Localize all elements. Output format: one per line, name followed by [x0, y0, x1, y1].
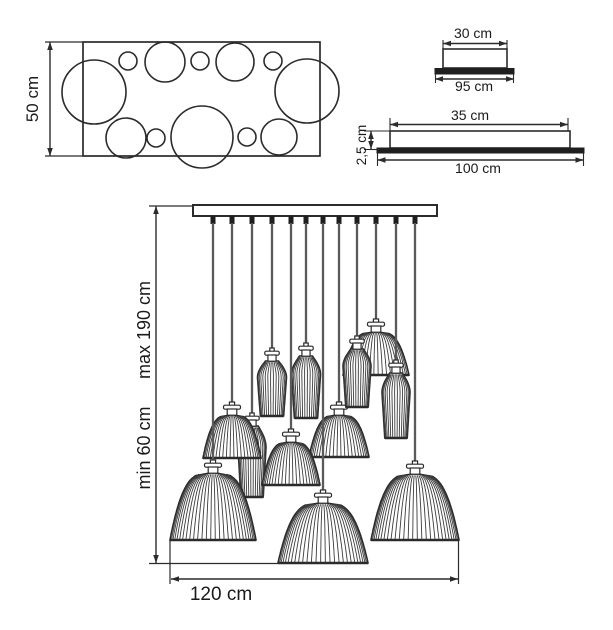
drawing-canvas: 50 cm 30 cm 95 cm 35 cm 2,5 cm 100 cm ma…: [0, 0, 613, 630]
cord-connector: [289, 216, 294, 224]
dim-arrowhead: [368, 131, 374, 139]
fitting-waist: [227, 409, 237, 415]
dim-label-canopy-side-base: 100 cm: [455, 160, 501, 176]
shade-opening-circle: [238, 128, 256, 146]
shade-opening-circle: [106, 118, 146, 158]
cord-connector: [250, 216, 255, 224]
fitting-waist: [410, 468, 420, 474]
shade-opening-circle: [264, 52, 282, 70]
shade-opening-circle: [119, 52, 137, 70]
dim-label-drop-max: max 190 cm: [134, 281, 154, 379]
ceiling-bar: [193, 205, 437, 216]
shade-outline-dome: [309, 415, 369, 457]
cord-connector: [413, 216, 418, 224]
canopy-top-view: [45, 42, 339, 168]
dim-arrowhead: [368, 141, 374, 149]
dim-arrowhead: [153, 206, 159, 214]
cord-connector: [394, 216, 399, 224]
shade-opening-circle: [147, 129, 165, 147]
canopy-front-view: [435, 40, 514, 83]
canopy-base-plate: [377, 148, 584, 153]
dim-arrowhead: [378, 157, 386, 163]
cord-connector: [374, 216, 379, 224]
dim-arrowhead: [450, 576, 458, 582]
pendant-4: [258, 223, 287, 416]
pendant-11: [382, 223, 410, 438]
dim-label-canopy-side-height: 2,5 cm: [354, 125, 369, 166]
fitting-waist: [392, 367, 400, 373]
dim-arrowhead: [390, 122, 398, 128]
dim-label-canopy-top-width: 30 cm: [454, 25, 492, 41]
fitting-waist: [208, 467, 218, 473]
canopy-body: [443, 49, 507, 68]
dim-arrowhead: [576, 157, 584, 163]
shade-outline-dome: [371, 474, 459, 540]
dim-arrowhead: [560, 122, 568, 128]
shade-opening-circle: [191, 52, 209, 70]
dim-arrowhead: [443, 41, 451, 47]
dim-label-canopy-top-base: 95 cm: [455, 78, 493, 94]
fitting-waist: [353, 343, 361, 349]
fitting-waist: [371, 326, 381, 332]
cord-connector: [337, 216, 342, 224]
dim-label-top-view-height: 50 cm: [23, 76, 42, 122]
canopy-body: [390, 131, 570, 148]
fitting-waist: [334, 409, 344, 415]
pendant-1: [170, 223, 256, 540]
dim-arrowhead: [499, 41, 507, 47]
shade-opening-circle: [261, 119, 297, 155]
cord-connector: [211, 216, 216, 224]
dim-arrowhead: [47, 42, 53, 50]
shade-opening-circle: [275, 59, 339, 123]
shade-opening-circle: [216, 43, 254, 81]
cord-connector: [304, 216, 309, 224]
shade-opening-circle: [62, 60, 126, 124]
shade-outline-dome: [278, 503, 368, 563]
fitting-waist: [268, 355, 276, 361]
cord-connector: [270, 216, 275, 224]
canopy-base-plate: [435, 69, 514, 75]
cord-connector: [355, 216, 360, 224]
cord-connector: [230, 216, 235, 224]
dim-label-canopy-side-width: 35 cm: [451, 107, 489, 123]
shade-opening-circle: [145, 42, 185, 82]
fitting-waist: [318, 497, 328, 503]
pendant-front-view: [149, 205, 459, 584]
cord-connector: [321, 216, 326, 224]
fitting-waist: [286, 436, 296, 442]
pendant-9: [343, 223, 371, 407]
dim-label-drop-min: min 60 cm: [134, 406, 154, 489]
dim-arrowhead: [435, 76, 443, 82]
dim-arrowhead: [47, 148, 53, 156]
shade-opening-circle: [171, 106, 233, 168]
canopy-side-view: [364, 118, 584, 166]
dim-label-fixture-width: 120 cm: [190, 584, 252, 605]
dim-arrowhead: [171, 576, 179, 582]
dim-arrowhead: [153, 555, 159, 563]
pendant-6: [292, 223, 321, 418]
fitting-waist: [302, 350, 310, 356]
pendant-lamp-technical-drawing: 50 cm 30 cm 95 cm 35 cm 2,5 cm 100 cm ma…: [0, 0, 613, 630]
dim-arrowhead: [506, 76, 514, 82]
